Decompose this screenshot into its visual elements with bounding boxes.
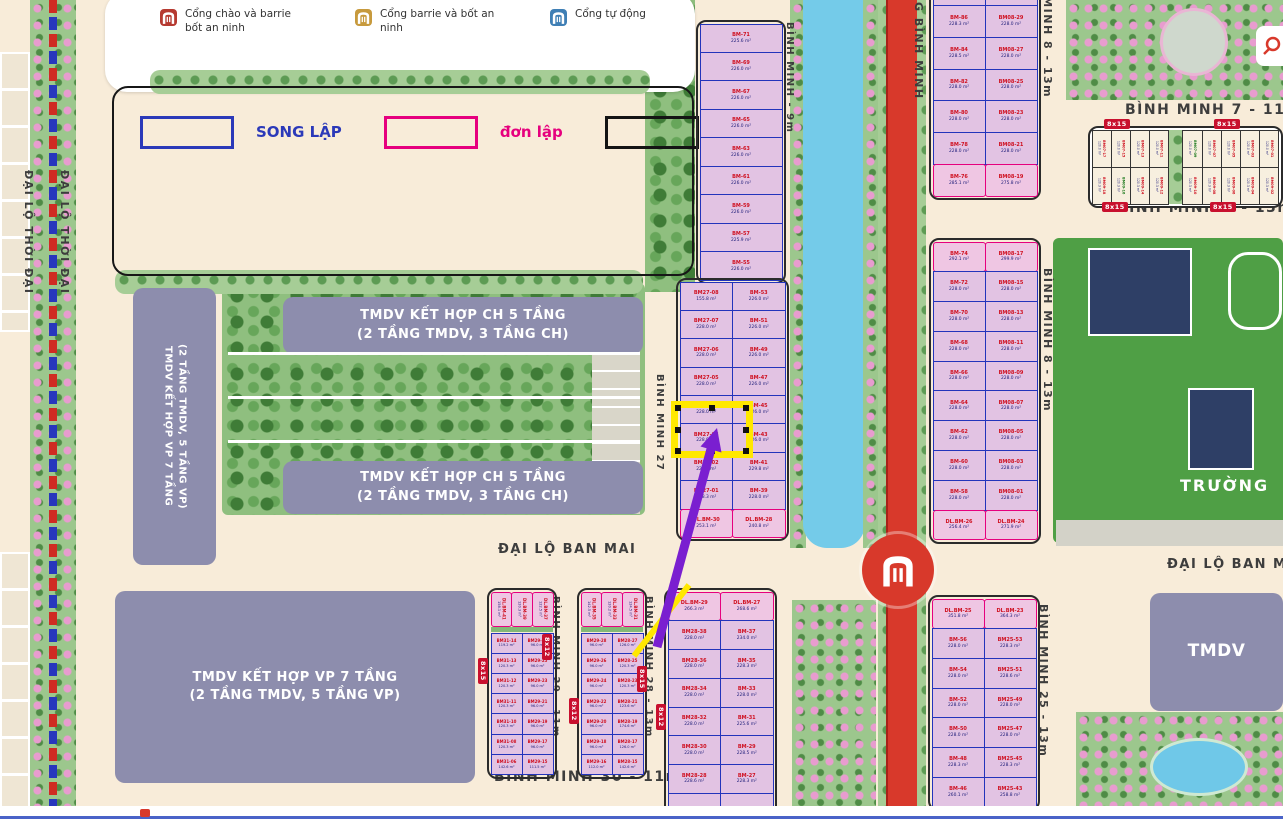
lot-columns: DL.BM-29266.3 m²BM28-38228.0 m²BM28-3622… — [668, 592, 773, 819]
lot-BM-69: BM-69226.0 m² — [700, 52, 783, 81]
lot-BM31-14: BM31-14119.2 m² — [491, 633, 523, 654]
building-ch-bottom: TMDV KẾT HỢP CH 5 TẦNG(2 TẦNG TMDV, 3 TẦ… — [283, 461, 643, 514]
street-label-banmai1: ĐẠI LỘ BAN MAI — [498, 542, 636, 557]
lot-BM-67: BM-67226.0 m² — [700, 80, 783, 109]
lot-BM-53: BM-53226.0 m² — [732, 282, 786, 311]
lot-BM09-08: BM09-08120.3 m² — [1202, 167, 1222, 205]
lot-BM-56: BM-56228.0 m² — [932, 628, 985, 659]
lot-BM28-27: BM28-27126.0 m² — [612, 633, 644, 654]
small-lot-gap — [1169, 167, 1183, 204]
lot-BM29-17: BM29-1796.0 m² — [522, 734, 554, 755]
lot-BM07-07: BM07-07120.0 m² — [1202, 130, 1222, 168]
lot-block-header: DL.BM-41158.1 m²DL.BM-39120.3 m²DL.BM-37… — [491, 592, 553, 626]
lot-BM07-09: BM07-09120.0 m² — [1182, 130, 1202, 168]
lot-BM25-49: BM25-49228.0 m² — [984, 688, 1037, 719]
lot-DL.BM-29: DL.BM-29266.3 m² — [668, 592, 722, 622]
lot-BM28-36: BM28-36228.0 m² — [668, 649, 722, 679]
lot-BM27-08: BM27-08155.8 m² — [680, 282, 734, 311]
lot-BM29-16: BM29-16112.0 m² — [581, 754, 613, 775]
lot-block-header: DL.BM-35142.5 m²DL.BM-33120.2 m²DL.BM-31… — [581, 592, 643, 626]
lot-column: BM-74292.1 m²BM-72228.0 m²BM-70228.0 m²B… — [933, 242, 985, 540]
building-vp-left: TMDV KẾT HỢP VP 7 TẦNG(2 TẦNG TMDV, 5 TẦ… — [133, 288, 216, 565]
lot-DL.BM-28: DL.BM-28240.8 m² — [732, 509, 786, 538]
lot-BM-66: BM-66228.0 m² — [933, 361, 986, 392]
lot-BM-80: BM-80228.0 m² — [933, 100, 986, 133]
lot-column: BM08-17299.9 m²BM08-15228.0 m²BM08-13228… — [985, 242, 1037, 540]
master-plan-map: TRƯỜNG Cổng chào và barrie bốt an ninhCổ… — [0, 0, 1283, 819]
lot-BM29-19: BM29-1996.0 m² — [522, 713, 554, 734]
building-label-line: TMDV KẾT HỢP CH 5 TẦNG — [360, 469, 566, 487]
lot-BM09-02: BM09-02120.3 m² — [1259, 167, 1279, 205]
street-label-bm7: BÌNH MINH 7 - 11m — [1125, 102, 1283, 118]
lot-BM08-27: BM08-27228.0 m² — [985, 37, 1038, 70]
building-label-line: TMDV — [1188, 640, 1246, 664]
legend-gate-label: Cổng chào và barrie bốt an ninh — [185, 8, 303, 35]
lot-BM-54: BM-54228.0 m² — [932, 658, 985, 689]
lot-BM29-26: BM29-2696.0 m² — [581, 653, 613, 674]
small-lot-block: BM07-17120.0 m²BM07-15120.0 m²BM07-13120… — [1088, 126, 1283, 208]
lot-BM29-21: BM29-2196.0 m² — [522, 693, 554, 714]
lot-BM-74: BM-74292.1 m² — [933, 242, 986, 273]
lot-BM-33: BM-33228.0 m² — [720, 678, 774, 708]
bottom-red-icon[interactable] — [140, 809, 150, 817]
lot-BM08-25: BM08-25228.0 m² — [985, 69, 1038, 102]
lot-BM08-15: BM08-15228.0 m² — [985, 271, 1038, 302]
lot-BM09-06: BM09-06120.3 m² — [1221, 167, 1241, 205]
lot-BM28-34: BM28-34228.0 m² — [668, 678, 722, 708]
school-building — [1188, 388, 1254, 470]
lot-column: BM31-14119.2 m²BM31-13120.3 m²BM31-12120… — [491, 633, 522, 775]
dimension-badge: 8x15 — [1210, 202, 1236, 212]
dimension-badge: 8x15 — [637, 666, 647, 692]
lot-column: BM29-2896.0 m²BM29-2696.0 m²BM29-2496.0 … — [581, 633, 612, 775]
lot-BM27-07: BM27-07228.0 m² — [680, 310, 734, 339]
legend-type-box — [605, 116, 699, 149]
lot-BM-51: BM-51226.0 m² — [732, 310, 786, 339]
lot-DL.BM-37: DL.BM-37122.5 m² — [532, 592, 554, 627]
lot-block-H: DL.BM-25351.8 m²BM-56228.0 m²BM-54228.0 … — [928, 595, 1040, 811]
dimension-badge: 8x15 — [1104, 119, 1130, 129]
lot-BM-59: BM-59226.0 m² — [700, 194, 783, 223]
lot-columns: BM-71225.6 m²BM-69226.0 m²BM-67226.0 m²B… — [700, 24, 782, 280]
lot-columns: BM29-2896.0 m²BM29-2696.0 m²BM29-2496.0 … — [581, 633, 643, 775]
lot-BM09-10: BM09-10120.3 m² — [1182, 167, 1202, 205]
lot-BM-60: BM-60228.0 m² — [933, 450, 986, 481]
dimension-badge: 8x12 — [542, 634, 552, 660]
lot-BM-29: BM-29228.5 m² — [720, 735, 774, 765]
lot-BM29-15: BM29-15111.5 m² — [522, 754, 554, 775]
lot-BM-72: BM-72228.0 m² — [933, 271, 986, 302]
lot-BM08-13: BM08-13228.0 m² — [985, 301, 1038, 332]
building-label-line: (2 TẦNG TMDV, 5 TẦNG VP) — [189, 687, 400, 705]
lot-BM28-32: BM28-32228.0 m² — [668, 707, 722, 737]
lot-BM08-23: BM08-23228.0 m² — [985, 100, 1038, 133]
lot-DL.BM-24: DL.BM-24271.9 m² — [985, 510, 1038, 541]
lot-DL.BM-31: DL.BM-31124.5 m² — [622, 592, 644, 627]
lot-BM-61: BM-61226.0 m² — [700, 166, 783, 195]
lot-BM07-05: BM07-05120.0 m² — [1221, 130, 1241, 168]
school-building — [1088, 248, 1192, 336]
lot-BM29-24: BM29-2496.0 m² — [581, 673, 613, 694]
lot-BM-70: BM-70228.0 m² — [933, 301, 986, 332]
lot-BM-68: BM-68228.0 m² — [933, 331, 986, 362]
lot-BM28-15: BM28-15142.6 m² — [612, 754, 644, 775]
lot-BM-55: BM-55226.0 m² — [700, 251, 783, 280]
lot-BM29-23: BM29-2396.0 m² — [522, 673, 554, 694]
lot-BM25-51: BM25-51228.6 m² — [984, 658, 1037, 689]
lot-DL.BM-41: DL.BM-41158.1 m² — [491, 592, 513, 627]
legend-type-box — [140, 116, 234, 149]
lot-BM08-07: BM08-07228.0 m² — [985, 390, 1038, 421]
lot-BM-58: BM-58228.0 m² — [933, 480, 986, 511]
street-label-bm8a: BÌNH MINH 8 - 13m — [1041, 268, 1054, 412]
lot-DL.BM-33: DL.BM-33120.2 m² — [601, 592, 623, 627]
small-lot-gap — [1169, 130, 1183, 167]
lot-BM-47: BM-47226.0 m² — [732, 367, 786, 396]
building-label-line: (2 TẦNG TMDV, 5 TẦNG VP) — [175, 344, 189, 509]
pond — [1150, 738, 1248, 796]
legend-gate-item: Cổng tự động — [550, 8, 693, 26]
edge-lots-bottom — [0, 552, 30, 812]
lot-BM-62: BM-62228.0 m² — [933, 420, 986, 451]
legend-types: SONG LẬPđơn lậpliền kề — [140, 114, 672, 150]
playground — [1160, 8, 1228, 76]
dimension-badge: 8x15 — [1214, 119, 1240, 129]
lot-BM09-16: BM09-16120.3 m² — [1111, 167, 1131, 205]
dimension-badge: 8x15 — [1102, 202, 1128, 212]
road-verge-right — [917, 0, 926, 819]
selection-handle[interactable] — [675, 405, 681, 411]
lot-BM28-21: BM28-21123.6 m² — [612, 693, 644, 714]
lot-BM-52: BM-52228.0 m² — [932, 688, 985, 719]
lot-BM09-14: BM09-14120.3 m² — [1130, 167, 1150, 205]
legend-gate-label: Cổng barrie và bốt an ninh — [380, 8, 498, 35]
lot-BM07-03: BM07-03120.0 m² — [1240, 130, 1260, 168]
lot-BM28-30: BM28-30228.0 m² — [668, 735, 722, 765]
building-vp-bottom: TMDV KẾT HỢP VP 7 TẦNG(2 TẦNG TMDV, 5 TẦ… — [115, 591, 475, 783]
lot-column: BM28-27126.0 m²BM28-25120.3 m²BM28-23120… — [612, 633, 643, 775]
gate-gold-icon — [355, 9, 372, 26]
street-label-bm8b: BÌNH MINH 8 - 13m — [1041, 0, 1054, 98]
lot-BM25-45: BM25-45228.3 m² — [984, 747, 1037, 778]
selection-handle[interactable] — [675, 427, 681, 433]
street-label-banmai2: ĐẠI LỘ BAN MAI — [1167, 557, 1283, 572]
lot-BM07-13: BM07-13120.0 m² — [1130, 130, 1150, 168]
lot-BM31-11: BM31-11120.3 m² — [491, 693, 523, 714]
lot-BM-84: BM-84228.5 m² — [933, 37, 986, 70]
lot-BM29-18: BM29-1896.0 m² — [581, 734, 613, 755]
lot-BM07-17: BM07-17120.0 m² — [1092, 130, 1112, 168]
selection-handle[interactable] — [709, 405, 715, 411]
lot-BM25-43: BM25-43258.8 m² — [984, 777, 1037, 808]
lot-BM29-20: BM29-2096.0 m² — [581, 713, 613, 734]
dimension-badge: 8x12 — [656, 704, 666, 730]
lot-BM27-01: BM27-01228.3 m² — [680, 480, 734, 509]
lot-BM-50: BM-50228.0 m² — [932, 717, 985, 748]
lot-BM08-03: BM08-03228.0 m² — [985, 450, 1038, 481]
lot-BM08-21: BM08-21228.0 m² — [985, 132, 1038, 165]
school-track — [1228, 252, 1282, 330]
lot-DL.BM-25: DL.BM-25351.8 m² — [932, 599, 985, 630]
lot-BM27-05: BM27-05228.0 m² — [680, 367, 734, 396]
lot-BM-82: BM-82228.0 m² — [933, 69, 986, 102]
lot-block-E: DL.BM-41158.1 m²DL.BM-39120.3 m²DL.BM-37… — [487, 588, 557, 779]
lot-BM-35: BM-35228.3 m² — [720, 649, 774, 679]
lot-BM31-10: BM31-10120.3 m² — [491, 713, 523, 734]
school-label: TRƯỜNG — [1180, 476, 1269, 495]
gate-blue-icon — [550, 9, 567, 26]
lot-BM29-28: BM29-2896.0 m² — [581, 633, 613, 654]
lot-block-A: BM-71225.6 m²BM-69226.0 m²BM-67226.0 m²B… — [696, 20, 786, 284]
lot-BM-39: BM-39228.0 m² — [732, 480, 786, 509]
lot-BM-86: BM-86228.3 m² — [933, 5, 986, 38]
lot-BM-27: BM-27228.3 m² — [720, 764, 774, 794]
search-icon[interactable] — [1256, 26, 1283, 66]
building-tmdv-right: TMDV — [1150, 593, 1283, 711]
lot-column: DL.BM-25351.8 m²BM-56228.0 m²BM-54228.0 … — [932, 599, 984, 807]
river — [803, 0, 865, 548]
lot-BM07-15: BM07-15120.0 m² — [1111, 130, 1131, 168]
building-label-line: (2 TẦNG TMDV, 3 TẦNG CH) — [357, 488, 569, 506]
main-gate-icon — [862, 534, 934, 606]
lot-DL.BM-39: DL.BM-39120.3 m² — [511, 592, 533, 627]
lot-block-C: 228.0 m²BM-86228.3 m²BM-84228.5 m²BM-822… — [929, 0, 1041, 200]
street-label-thoidai1: ĐẠI LỘ THỜI ĐẠI — [22, 170, 35, 294]
lot-BM-31: BM-31225.6 m² — [720, 707, 774, 737]
legend-type-label: đơn lập — [500, 123, 563, 141]
lot-BM07-01: BM07-01120.0 m² — [1259, 130, 1279, 168]
lot-BM09-18: BM09-18120.3 m² — [1092, 167, 1112, 205]
small-lot-row: BM09-18120.3 m²BM09-16120.3 m²BM09-14120… — [1092, 167, 1279, 204]
lot-BM08-19: BM08-19275.8 m² — [985, 164, 1038, 197]
lot-BM08-01: BM08-01228.0 m² — [985, 480, 1038, 511]
green-divider — [581, 627, 643, 632]
plaza — [1056, 520, 1283, 546]
legend-type-box — [384, 116, 478, 149]
lot-BM-46: BM-46260.1 m² — [932, 777, 985, 808]
lot-columns: DL.BM-25351.8 m²BM-56228.0 m²BM-54228.0 … — [932, 599, 1036, 807]
trees-south-of-river — [792, 600, 876, 819]
lot-BM-63: BM-63226.0 m² — [700, 137, 783, 166]
small-lot-row: BM07-17120.0 m²BM07-15120.0 m²BM07-13120… — [1092, 130, 1279, 167]
lot-BM09-12: BM09-12120.3 m² — [1149, 167, 1169, 205]
building-label-line: TMDV KẾT HỢP VP 7 TẦNG — [193, 669, 398, 687]
lot-BM28-17: BM28-17126.0 m² — [612, 734, 644, 755]
selection-handle[interactable] — [675, 448, 681, 454]
lot-column: BM-71225.6 m²BM-69226.0 m²BM-67226.0 m²B… — [700, 24, 782, 280]
lot-BM-76: BM-76285.1 m² — [933, 164, 986, 197]
lot-BM27-06: BM27-06228.0 m² — [680, 338, 734, 367]
lot-DL.BM-27: DL.BM-27268.6 m² — [720, 592, 774, 622]
legend-type-label: SONG LẬP — [256, 123, 342, 141]
lot-BM29-22: BM29-2296.0 m² — [581, 693, 613, 714]
lot-BM07-11: BM07-11120.0 m² — [1149, 130, 1169, 168]
lot-BM-37: BM-37234.0 m² — [720, 620, 774, 650]
legend-gate-label: Cổng tự động — [575, 8, 693, 22]
lot-columns: 228.0 m²BM-86228.3 m²BM-84228.5 m²BM-822… — [933, 0, 1037, 196]
gate-red-icon — [160, 9, 177, 26]
main-road — [886, 0, 920, 819]
tram-line — [49, 0, 57, 819]
lot-BM28-19: BM28-19174.6 m² — [612, 713, 644, 734]
lot-column: DL.BM-27268.6 m²BM-37234.0 m²BM-35228.3 … — [721, 592, 774, 819]
building-ch-top: TMDV KẾT HỢP CH 5 TẦNG(2 TẦNG TMDV, 3 TẦ… — [283, 297, 643, 354]
selection-handle[interactable] — [743, 405, 749, 411]
lot-columns: BM-74292.1 m²BM-72228.0 m²BM-70228.0 m²B… — [933, 242, 1037, 540]
lot-BM-57: BM-57225.9 m² — [700, 223, 783, 252]
building-label-line: (2 TẦNG TMDV, 3 TẦNG CH) — [357, 326, 569, 344]
lot-BM08-29: BM08-29228.0 m² — [985, 5, 1038, 38]
building-label-line: TMDV KẾT HỢP CH 5 TẦNG — [360, 307, 566, 325]
selection-handle[interactable] — [709, 448, 715, 454]
lot-BM08-11: BM08-11228.0 m² — [985, 331, 1038, 362]
green-divider — [491, 627, 553, 632]
lot-BM-71: BM-71225.6 m² — [700, 24, 783, 53]
park-path — [228, 396, 640, 399]
lot-DL.BM-23: DL.BM-23364.3 m² — [984, 599, 1037, 630]
lot-BM25-47: BM25-47228.0 m² — [984, 717, 1037, 748]
lot-BM31-13: BM31-13120.3 m² — [491, 653, 523, 674]
lot-BM-78: BM-78228.0 m² — [933, 132, 986, 165]
legend-gate-item: Cổng barrie và bốt an ninh — [355, 8, 498, 35]
lot-BM31-06: BM31-06142.6 m² — [491, 754, 523, 775]
lot-BM08-17: BM08-17299.9 m² — [985, 242, 1038, 273]
lot-BM08-09: BM08-09228.0 m² — [985, 361, 1038, 392]
park-path — [228, 352, 640, 355]
lot-DL.BM-30: DL.BM-30253.1 m² — [680, 509, 734, 538]
lot-column: 228.0 m²BM-86228.3 m²BM-84228.5 m²BM-822… — [933, 0, 985, 196]
lot-column: DL.BM-23364.3 m²BM25-53228.3 m²BM25-5122… — [984, 599, 1036, 807]
lot-BM28-28: BM28-28228.6 m² — [668, 764, 722, 794]
park-path — [228, 440, 640, 443]
legend-gates: Cổng chào và barrie bốt an ninhCổng barr… — [160, 8, 640, 35]
lot-BM25-53: BM25-53228.3 m² — [984, 628, 1037, 659]
dimension-badge: 8x15 — [478, 658, 488, 684]
street-label-gbm: G BÌNH MINH — [912, 2, 925, 100]
lot-BM-65: BM-65226.0 m² — [700, 109, 783, 138]
lot-BM28-38: BM28-38228.0 m² — [668, 620, 722, 650]
selection-handle[interactable] — [743, 448, 749, 454]
lot-BM09-04: BM09-04120.3 m² — [1240, 167, 1260, 205]
lot-column: 228.0 m²BM08-29228.0 m²BM08-27228.0 m²BM… — [985, 0, 1037, 196]
street-label-bm27: BÌNH MINH 27 — [654, 374, 665, 471]
lot-DL.BM-26: DL.BM-26256.4 m² — [933, 510, 986, 541]
street-label-thoidai2: ĐẠI LỘ THỜI ĐẠI — [58, 170, 71, 294]
selection-handle[interactable] — [743, 427, 749, 433]
lot-BM31-12: BM31-12120.3 m² — [491, 673, 523, 694]
lot-block-G: DL.BM-29266.3 m²BM28-38228.0 m²BM28-3622… — [664, 588, 777, 819]
lot-BM31-08: BM31-08120.3 m² — [491, 734, 523, 755]
lot-column: DL.BM-29266.3 m²BM28-38228.0 m²BM28-3622… — [668, 592, 721, 819]
lot-BM-49: BM-49226.0 m² — [732, 338, 786, 367]
lot-BM-64: BM-64228.0 m² — [933, 390, 986, 421]
lot-BM-48: BM-48228.3 m² — [932, 747, 985, 778]
legend-gate-item: Cổng chào và barrie bốt an ninh — [160, 8, 303, 35]
lot-BM08-05: BM08-05228.0 m² — [985, 420, 1038, 451]
dimension-badge: 8x12 — [569, 698, 579, 724]
building-label-line: TMDV KẾT HỢP VP 7 TẦNG — [161, 346, 175, 506]
lot-block-D: BM-74292.1 m²BM-72228.0 m²BM-70228.0 m²B… — [929, 238, 1041, 544]
selected-lot-highlight[interactable] — [671, 401, 753, 458]
lot-DL.BM-35: DL.BM-35142.5 m² — [581, 592, 603, 627]
